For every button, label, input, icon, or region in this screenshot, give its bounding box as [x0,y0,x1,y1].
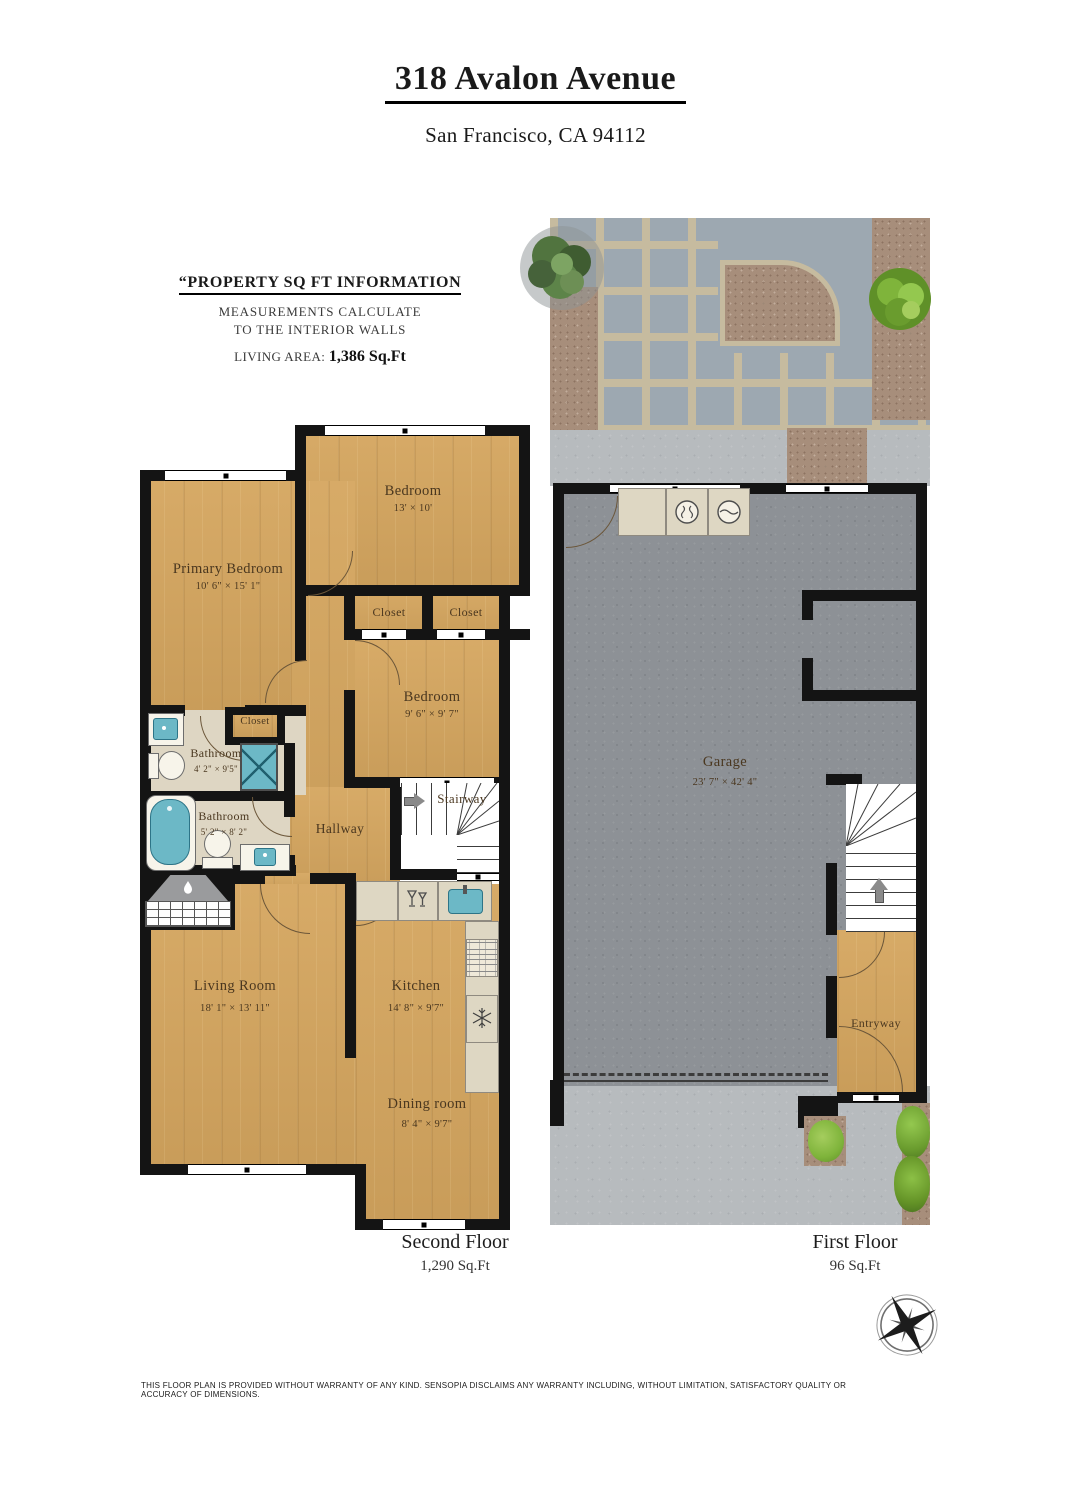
stairway-lower-run [457,835,499,873]
wall-segment [519,425,530,596]
wall-segment [916,483,927,1103]
room-label-bedroom-top: Bedroom 13' × 10' [385,483,442,514]
bush-icon [865,264,935,334]
property-info-block: “PROPERTY SQ FT INFORMATION MEASUREMENTS… [170,274,470,366]
toilet-tank [202,857,233,869]
floor-plan-page: 318 Avalon Avenue San Francisco, CA 9411… [0,0,1071,1499]
floor-caption-area: 96 Sq.Ft [755,1258,955,1275]
bathtub-icon [146,795,196,871]
driveway-band [550,430,930,486]
wall-segment [550,1080,564,1126]
room-name: Closet [240,716,269,727]
wall-segment [310,873,356,884]
room-dims: 13' × 10' [385,503,442,514]
floor-caption-area: 1,290 Sq.Ft [355,1258,555,1275]
dishwasher-icon [398,881,438,921]
second-floor-plan: Stairway [140,425,530,1230]
toilet-bowl [158,751,185,780]
room-name: Closet [449,605,482,620]
wall-segment [235,873,265,884]
room-name: Living Room [194,978,276,995]
living-area-label: LIVING AREA: [234,349,325,364]
room-label-bathroom-upper: Bathroom 4' 2" × 9'5" [190,746,241,774]
room-label-primary-bedroom: Primary Bedroom 10' 6" × 15' 1" [173,561,283,592]
stair-direction-arrow-icon [404,793,425,809]
plant-icon [808,1120,844,1162]
page-title: 318 Avalon Avenue [385,60,686,104]
vanity-sink-icon [148,713,184,746]
kitchen-sink-unit [438,881,492,921]
wine-glasses-icon [406,889,430,913]
first-floor-caption: First Floor 96 Sq.Ft [755,1231,955,1275]
window-marker [165,470,286,481]
wall-segment [284,743,295,791]
room-dims: 14' 8" × 9'7" [388,1003,444,1014]
room-label-living-room: Living Room 18' 1" × 13' 11" [194,978,276,1014]
room-label-stairway: Stairway [437,791,486,807]
property-info-heading: “PROPERTY SQ FT INFORMATION [179,274,461,295]
property-info-line1: MEASUREMENTS CALCULATE [170,304,470,320]
room-dims: 8' 4" × 9'7" [388,1119,467,1130]
wall-segment [802,590,924,601]
wall-segment [390,869,457,880]
room-name: Hallway [316,821,365,837]
floor-caption-title: Second Floor [355,1231,555,1254]
wall-segment [826,976,837,1038]
soil-patch [787,428,867,486]
room-label-closet-small: Closet [240,716,269,727]
wall-segment [826,863,837,935]
first-floor-plan: Garage 23' 7" × 42' 4" Entryway [550,218,930,1225]
shower-icon [240,743,278,791]
faucet-dot [162,726,166,730]
room-name: Bedroom [385,483,442,500]
living-area-line: LIVING AREA: 1,386 Sq.Ft [170,348,470,366]
refrigerator-icon [466,995,498,1043]
page-subtitle: San Francisco, CA 94112 [0,123,1071,148]
closet-door-marker [437,629,485,640]
plant-icon [894,1156,930,1212]
room-name: Bathroom [190,746,241,761]
room-dims: 10' 6" × 15' 1" [173,581,283,592]
room-name: Stairway [437,791,486,807]
washer-icon [666,488,708,536]
room-dims: 18' 1" × 13' 11" [194,1003,276,1014]
room-name: Dining room [388,1096,467,1113]
living-area-value: 1,386 Sq.Ft [329,348,406,365]
wall-segment [344,690,355,788]
wall-segment [553,483,564,1105]
wall-segment [802,690,924,701]
room-label-hallway: Hallway [316,821,365,837]
tree-icon [516,222,608,314]
room-dims: 23' 7" × 42' 4" [693,777,758,788]
flame-icon [182,880,194,895]
arrow-stem [875,890,884,903]
fireplace-hearth [145,901,231,927]
wall-segment [390,780,401,880]
room-dims: 4' 2" × 9'5" [190,764,241,774]
disclaimer-text: THIS FLOOR PLAN IS PROVIDED WITHOUT WARR… [141,1381,891,1399]
wall-segment [802,590,813,620]
property-info-line2: TO THE INTERIOR WALLS [170,322,470,338]
room-label-bedroom-mid: Bedroom 9' 6" × 9' 7" [404,689,461,720]
window-marker [383,1219,465,1230]
room-label-closet-right: Closet [449,605,482,620]
arrow-head [870,878,888,890]
window-marker [188,1164,306,1175]
tub-drain [167,806,172,811]
stair-rail-marker [457,873,499,881]
room-name: Primary Bedroom [173,561,283,578]
faucet-icon [463,885,467,894]
stair-fan-icon [846,784,916,846]
kitchen-counter [356,881,398,921]
wall-segment [295,481,306,661]
window-marker [325,425,485,436]
entry-door-marker [853,1094,899,1102]
room-label-closet-left: Closet [372,605,405,620]
compass-rose-icon [857,1275,957,1375]
vanity-sink-icon [240,844,290,871]
dryer-icon [708,488,750,536]
room-dims: 5' 2" × 8' 2" [198,827,249,837]
dryer-drum-icon [715,498,743,526]
faucet-dot [263,853,267,857]
stair-direction-arrow-icon [870,878,888,903]
arrow-head [414,793,425,809]
laundry-counter [618,488,666,536]
garage-door-line [564,1073,828,1076]
room-name: Garage [693,754,758,771]
header: 318 Avalon Avenue [0,60,1071,104]
room-name: Closet [372,605,405,620]
room-label-garage: Garage 23' 7" × 42' 4" [693,754,758,788]
wall-segment [345,884,356,1058]
sidewalk [550,1086,930,1225]
room-name: Bathroom [198,809,249,824]
room-name: Bedroom [404,689,461,706]
wall-segment [499,585,510,1230]
garage-door-line [564,1080,828,1082]
plant-icon [896,1106,930,1158]
room-name: Kitchen [388,978,444,995]
room-label-entryway: Entryway [851,1016,901,1031]
room-label-dining-room: Dining room 8' 4" × 9'7" [388,1096,467,1130]
second-floor-caption: Second Floor 1,290 Sq.Ft [355,1231,555,1275]
floor-caption-title: First Floor [755,1231,955,1254]
room-name: Entryway [851,1016,901,1031]
window-marker [786,484,868,493]
sink-basin [254,848,276,866]
arrow-stem [404,797,414,806]
room-label-kitchen: Kitchen 14' 8" × 9'7" [388,978,444,1014]
stairway-first-floor [846,784,916,932]
washer-drum-icon [673,498,701,526]
heater-icon [466,939,498,977]
snowflake-icon [470,1006,494,1030]
closet-door-marker [362,629,406,640]
room-dims: 9' 6" × 9' 7" [404,709,461,720]
room-label-bathroom-lower: Bathroom 5' 2" × 8' 2" [198,809,249,837]
